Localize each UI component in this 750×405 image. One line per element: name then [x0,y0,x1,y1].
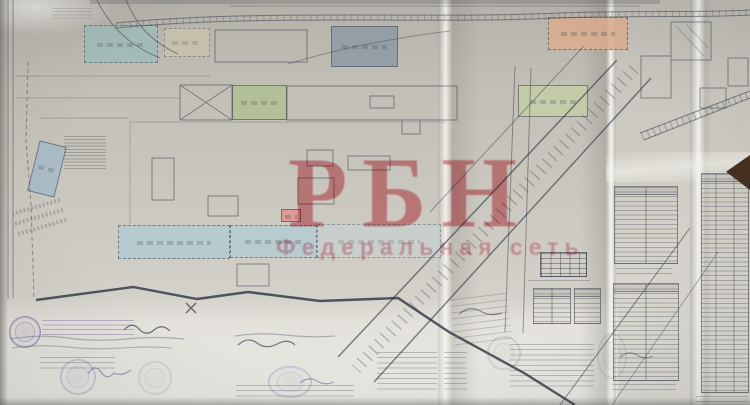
title-block-text [510,344,594,388]
legend-labels [377,352,437,393]
explication-caption [528,280,590,285]
annotation-note-box [64,136,106,170]
coordinates-table-1 [614,186,678,264]
round-stamp-1 [9,316,41,348]
legend-values [444,352,467,393]
table-caption-3 [696,396,748,402]
corner-annotation [52,8,92,20]
table-caption-1 [616,268,672,277]
table-caption-2 [612,384,676,391]
railway-lines [97,0,750,58]
round-stamp-2 [60,359,96,395]
mini-table-right [574,288,601,324]
oval-stamp-6 [597,333,627,379]
oval-stamp-4 [268,366,312,398]
mini-table-left [533,288,571,324]
approval-text-purple [42,320,134,338]
round-stamp-5 [487,336,521,370]
scanned-genplan-photo: РБН Федеральная сеть [0,0,750,405]
explication-table [540,252,587,277]
round-stamp-3 [138,361,172,395]
coordinates-table-3 [701,173,749,393]
